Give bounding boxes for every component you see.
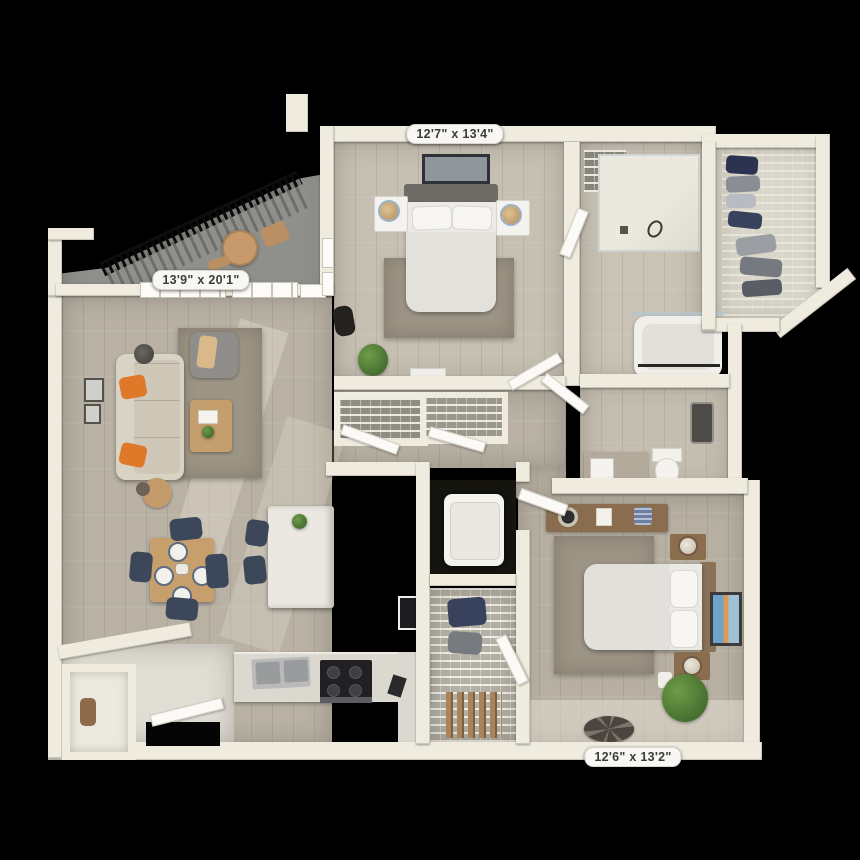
washer-lid — [450, 502, 500, 560]
stove-burner-2 — [349, 666, 362, 679]
closet-clothes-4 — [727, 210, 762, 229]
bedroom2-lamp-bottom — [684, 658, 700, 674]
sink-basin-2 — [283, 659, 308, 682]
wall-closet-right — [816, 136, 830, 288]
dining-chair-right — [205, 553, 229, 588]
shower-enclosure — [598, 154, 700, 252]
sink-basin-1 — [255, 661, 280, 684]
coffee-table-plant — [202, 426, 214, 438]
floorplan-canvas: 12'7" x 13'4" 13'9" x 20'1" 12'6" x 13'2… — [0, 0, 860, 860]
floor-lamp — [134, 344, 154, 364]
closet-clothes-3 — [726, 194, 756, 208]
linen-clothes-gray — [447, 631, 482, 655]
wall-top — [320, 126, 716, 142]
wall-bedroom2-top — [552, 478, 748, 494]
living-room-dimension-label: 13'9" x 20'1" — [152, 270, 249, 290]
bedroom1-dimension-label: 12'7" x 13'4" — [406, 124, 503, 144]
closet-clothes-6 — [739, 256, 782, 278]
dining-centerpiece — [176, 564, 188, 574]
bedroom2-wall-art — [710, 592, 742, 646]
wall-top-closet — [702, 134, 830, 148]
dining-plate-1 — [168, 542, 188, 562]
bathtub-towel-bar — [638, 364, 720, 367]
wall-laundry-right — [516, 530, 530, 744]
gallery-frame-2 — [84, 404, 101, 424]
dresser-basket — [634, 507, 652, 525]
stove-burner-1 — [327, 666, 340, 679]
bedroom1-wall-art — [422, 154, 490, 184]
bedroom2-dimension-label: 12'6" x 13'2" — [584, 747, 681, 767]
wall-left-stub-horizontal — [48, 228, 94, 240]
wall-laundry-divider — [430, 574, 516, 586]
island-stool-2 — [243, 555, 268, 585]
sofa-pillow-orange-1 — [118, 374, 147, 400]
stove-burner-4 — [349, 684, 362, 697]
bedroom2-pillow-1 — [670, 570, 698, 608]
armchair-throw — [196, 335, 218, 369]
stove-control-band — [320, 697, 372, 703]
wall-stub-top — [286, 94, 308, 132]
bedroom1-pillow-1 — [412, 205, 453, 230]
bedroom1-lamp-left — [380, 202, 398, 220]
bedroom2-duvet — [584, 564, 670, 650]
ceiling-fan — [584, 716, 634, 742]
stove — [320, 660, 372, 702]
wall-bedroom2-right — [744, 480, 760, 756]
wall-hall-bottom — [326, 462, 428, 476]
closet-clothes-2 — [726, 175, 761, 193]
wall-bathroom-right — [728, 324, 742, 492]
dining-plate-2 — [154, 566, 174, 586]
linen-clothes-navy — [447, 596, 487, 627]
wall-tubroom-bottom — [580, 374, 730, 388]
wall-left — [48, 284, 62, 758]
island-stool-1 — [244, 519, 269, 548]
wall-laundry-left — [416, 462, 430, 744]
bedroom2-light-band — [518, 700, 746, 744]
bedroom1-duvet — [406, 232, 496, 312]
bedroom1-plant — [358, 344, 388, 376]
gallery-frame-1 — [84, 378, 104, 402]
bathroom-towel — [692, 404, 712, 442]
linen-shoes — [446, 692, 502, 738]
bedroom1-lamp-right — [502, 206, 520, 224]
dining-chair-left — [129, 551, 154, 583]
bedroom2-plant — [662, 674, 708, 722]
closet-clothes-7 — [741, 279, 782, 298]
wall-bedroom1-right — [564, 142, 580, 386]
coat-closet — [62, 664, 136, 760]
stove-burner-3 — [327, 684, 340, 697]
coffee-table-book — [198, 410, 218, 424]
bedroom1-pillow-2 — [452, 205, 493, 230]
wall-shower-closet-divider — [702, 142, 716, 330]
bedroom1-window-1 — [322, 238, 334, 268]
shower-drain — [620, 226, 628, 234]
coat-closet-item — [80, 698, 96, 726]
side-table-lamp — [136, 482, 150, 496]
dining-chair-bottom — [165, 597, 199, 622]
bedroom1-window-2 — [322, 272, 334, 296]
wall-balcony-bedroom1 — [320, 126, 334, 296]
closet-clothes-1 — [725, 155, 758, 175]
dining-chair-top — [169, 516, 203, 541]
island-plant — [292, 514, 307, 529]
vanity-sink — [590, 458, 614, 480]
dresser-box — [596, 508, 612, 526]
bedroom2-lamp-top — [680, 538, 696, 554]
bedroom2-pillow-2 — [670, 610, 698, 648]
wall-laundry-right-stub — [516, 462, 530, 482]
